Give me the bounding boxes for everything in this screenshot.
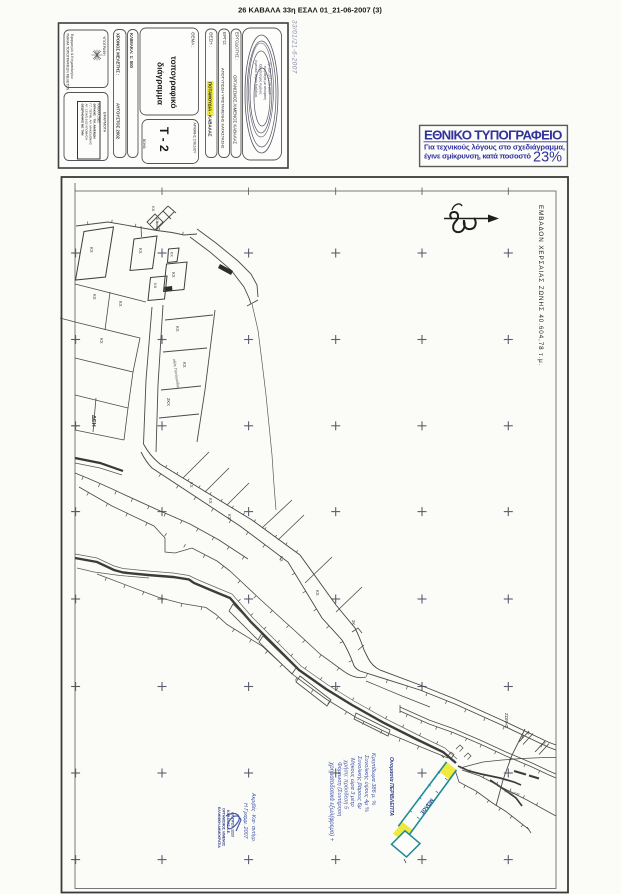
svg-text:Η Γραμμ. 2007: Η Γραμμ. 2007 — [242, 803, 248, 840]
svg-text:εγκρίθηκε με απόφαση: εγκρίθηκε με απόφαση — [263, 66, 267, 100]
svg-text:ΑΠΟΤΥΠΩΣΗ ΥΦΙΣΤΑΜΕΝΗΣ ΚΑΤΑΣΤΑΣ: ΑΠΟΤΥΠΩΣΗ ΥΦΙΣΤΑΜΕΝΗΣ ΚΑΤΑΣΤΑΣΗΣ — [221, 68, 226, 149]
svg-text:ΚΧ: ΚΧ — [92, 294, 97, 300]
svg-text:ΒΟΗΘ.: ΒΟΗΘ. — [142, 139, 146, 149]
svg-text:ΚΧ: ΚΧ — [227, 514, 232, 520]
svg-text:2Κ: 2Κ — [351, 620, 356, 625]
svg-text:ΚΧ: ΚΧ — [189, 482, 194, 488]
svg-text:ΕΘΝΙΚΟ ΤΥΠΟΓΡΑΦΕΙΟ: ΕΘΝΙΚΟ ΤΥΠΟΓΡΑΦΕΙΟ — [424, 128, 563, 143]
svg-text:26 ΚΑΒΑΛΑ 33η ΕΣΑΛ 01_21-06-20: 26 ΚΑΒΑΛΑ 33η ΕΣΑΛ 01_21-06-2007 (3) — [238, 6, 382, 15]
svg-text:τοπογραφικό: τοπογραφικό — [169, 56, 179, 109]
svg-text:ΕΡΓΟ:: ΕΡΓΟ: — [222, 32, 227, 45]
svg-text:ΚΧ: ΚΧ — [171, 272, 176, 278]
svg-text:ΘΕΣΗ :: ΘΕΣΗ : — [209, 32, 214, 47]
svg-text:ΚΧ: ΚΧ — [151, 206, 156, 212]
svg-text:5: 5 — [526, 732, 530, 736]
svg-text:ΑΡ. ΠΡΩΤ. 1223: ΑΡ. ΠΡΩΤ. 1223 — [231, 812, 235, 837]
svg-text:ΘΕΩΡΗΘΗΚΕ ΜΕ ΤΗΝ: ΘΕΩΡΗΘΗΚΕ ΜΕ ΤΗΝ — [81, 104, 85, 136]
svg-text:ΚΧ: ΚΧ — [138, 248, 143, 254]
svg-text:ΚΑΒΑΛΑΣ Α.Ε.: ΚΑΒΑΛΑΣ Α.Ε. — [226, 810, 230, 834]
svg-text:Τ - 2: Τ - 2 — [157, 127, 171, 152]
svg-text:ΥΠΟΓΡΑΦΗ: ΥΠΟΓΡΑΦΗ — [102, 36, 106, 56]
svg-text:ΚΧ: ΚΧ — [153, 283, 158, 289]
svg-text:ΚΛΙΜΑΚΑ: 1: 500: ΚΛΙΜΑΚΑ: 1: 500 — [129, 33, 134, 68]
svg-text:ΤΜΗΜΑ ΤΟΠΟΓΡΑΦΙΚΩΝ ΜΕΛΕΤΩΝ: ΤΜΗΜΑ ΤΟΠΟΓΡΑΦΙΚΩΝ ΜΕΛΕΤΩΝ — [66, 33, 70, 91]
svg-text:οδός Παναγούδας: οδός Παναγούδας — [172, 359, 180, 390]
svg-text:Συνολικής ύψους 4μ %: Συνολικής ύψους 4μ % — [363, 754, 370, 812]
svg-text:23%: 23% — [533, 150, 562, 166]
svg-text:Μήκους ώρα 3 μέτρ: Μήκους ώρα 3 μέτρ — [349, 758, 356, 808]
svg-text:χρήση: πρόσδεση 5: χρήση: πρόσδεση 5 — [343, 759, 350, 810]
svg-text:διάγραμμα: διάγραμμα — [156, 62, 166, 106]
svg-text:2ΚΧ: 2ΚΧ — [166, 398, 171, 406]
svg-text:ΚΧ: ΚΧ — [208, 498, 213, 504]
svg-text:ΚΑΒΑΛΑ 2002: ΚΑΒΑΛΑ 2002 — [97, 104, 101, 124]
svg-text:ΚΧ: ΚΧ — [99, 338, 104, 344]
svg-text:ΔΕΗ: ΔΕΗ — [90, 415, 96, 427]
svg-text:ΚΧ: ΚΧ — [175, 326, 180, 332]
svg-text:ΟΡΓΑΝΙΣΜΟΣ ΛΙΜΕΝΟΣ: ΟΡΓΑΝΙΣΜΟΣ ΛΙΜΕΝΟΣ — [222, 808, 226, 846]
svg-text:33/01/21-6-2007: 33/01/21-6-2007 — [291, 20, 298, 74]
svg-text:ΚΧ: ΚΧ — [315, 590, 320, 596]
svg-text:ΚΧ: ΚΧ — [170, 252, 174, 257]
svg-text:ΟΡΓΑΝΙΣΜΟΣ ΛΙΜΕΝΟΣ ΚΑΒΑΛΑΣ: ΟΡΓΑΝΙΣΜΟΣ ΛΙΜΕΝΟΣ ΚΑΒΑΛΑΣ — [233, 75, 238, 145]
svg-text:Κρηπίδωμα 386 μ. %: Κρηπίδωμα 386 μ. % — [370, 753, 376, 805]
svg-text:Ονομασία ΠΕΡΙΒΛΕΠΤΑ: Ονομασία ΠΕΡΙΒΛΕΠΤΑ — [388, 757, 394, 816]
svg-text:Ακριβές ·Και· αντίγρ.: Ακριβές ·Και· αντίγρ. — [250, 792, 257, 842]
svg-text:ΕΦΑΡΜΟΓΗ: ΕΦΑΡΜΟΓΗ — [103, 112, 107, 133]
svg-text:ΘΡΑΚΗΣ - ΤΜ. ΛΙΜΕΝΩΝ: ΘΡΑΚΗΣ - ΤΜ. ΛΙΜΕΝΩΝ — [93, 104, 97, 139]
svg-text:ΚΧ: ΚΧ — [182, 362, 187, 368]
svg-text:ΚΧ: ΚΧ — [118, 301, 123, 307]
svg-text:ΕΡΓΟΔΟΤΗΣ :: ΕΡΓΟΔΟΤΗΣ : — [235, 32, 240, 60]
svg-text:Λιμενικό Ταμείο Καβάλας: Λιμενικό Ταμείο Καβάλας — [254, 60, 258, 98]
svg-text:έγινε σμίκρυνση, κατά ποσοστό: έγινε σμίκρυνση, κατά ποσοστό — [424, 152, 531, 161]
svg-text:ΧΡΟΝΟΣ ΜΕΛΕΤΗΣ :: ΧΡΟΝΟΣ ΜΕΛΕΤΗΣ : — [116, 33, 121, 76]
svg-text:ΕΛΛΗΝΙΚΗ ΔΗΜΟΚΡΑΤΙΑ: ΕΛΛΗΝΙΚΗ ΔΗΜΟΚΡΑΤΙΑ — [217, 807, 221, 848]
svg-text:ΕΜΒΑΔΟΝ ΧΕΡΣΑΙΑΣ ΖΩΝΗΣ 40.6: ΕΜΒΑΔΟΝ ΧΕΡΣΑΙΑΣ ΖΩΝΗΣ 40.604,78 τ.μ. — [537, 205, 544, 366]
svg-text:ΠΟΤΑΜΟΥΔΙΑ - ΚΑΒΑΛΑΣ: ΠΟΤΑΜΟΥΔΙΑ - ΚΑΒΑΛΑΣ — [207, 82, 212, 137]
svg-text:ΚΧ: ΚΧ — [89, 247, 94, 253]
svg-text:Γ.Γ. ΠΕΡΙΦ. ΑΝ. ΜΑΚΕΔΟΝΙΑΣ: Γ.Γ. ΠΕΡΙΦ. ΑΝ. ΜΑΚΕΔΟΝΙΑΣ — [89, 104, 93, 146]
svg-text:ΑΡ. 1234/5.9.02 ΑΠΟΦΑΣΗ: ΑΡ. 1234/5.9.02 ΑΠΟΦΑΣΗ — [85, 104, 89, 141]
svg-text:Οργανισμός Λιμένος: Οργανισμός Λιμένος — [259, 64, 263, 95]
svg-text:ΚΧ: ΚΧ — [155, 218, 160, 224]
svg-text:Φόρτωση (Συντήρηση: Φόρτωση (Συντήρηση — [336, 762, 343, 816]
svg-text:ΘΕΜΑ :: ΘΕΜΑ : — [191, 32, 196, 48]
svg-text:αρ. 33/01/21-06-2007: αρ. 33/01/21-06-2007 — [268, 62, 272, 95]
svg-text:ΑΡΙΘΜΗΣ ΣΧΕΔΙΟΥ: ΑΡΙΘΜΗΣ ΣΧΕΔΙΟΥ — [193, 123, 197, 155]
svg-text:ΑΥΓΟΥΣΤΟΣ 2002: ΑΥΓΟΥΣΤΟΣ 2002 — [116, 103, 121, 140]
svg-text:ΚΧ: ΚΧ — [279, 556, 284, 562]
svg-text:Εφαρμογών & Κτηματολογίου: Εφαρμογών & Κτηματολογίου — [70, 34, 74, 79]
svg-text:χρηματοδοτικά εξωλ(φρεμα) +: χρηματοδοτικά εξωλ(φρεμα) + — [328, 761, 334, 842]
svg-text:ΖΩΝΗΣ: ΖΩΝΗΣ — [504, 713, 509, 729]
svg-text:Συνολικής βάρους 6μ: Συνολικής βάρους 6μ — [356, 755, 363, 809]
